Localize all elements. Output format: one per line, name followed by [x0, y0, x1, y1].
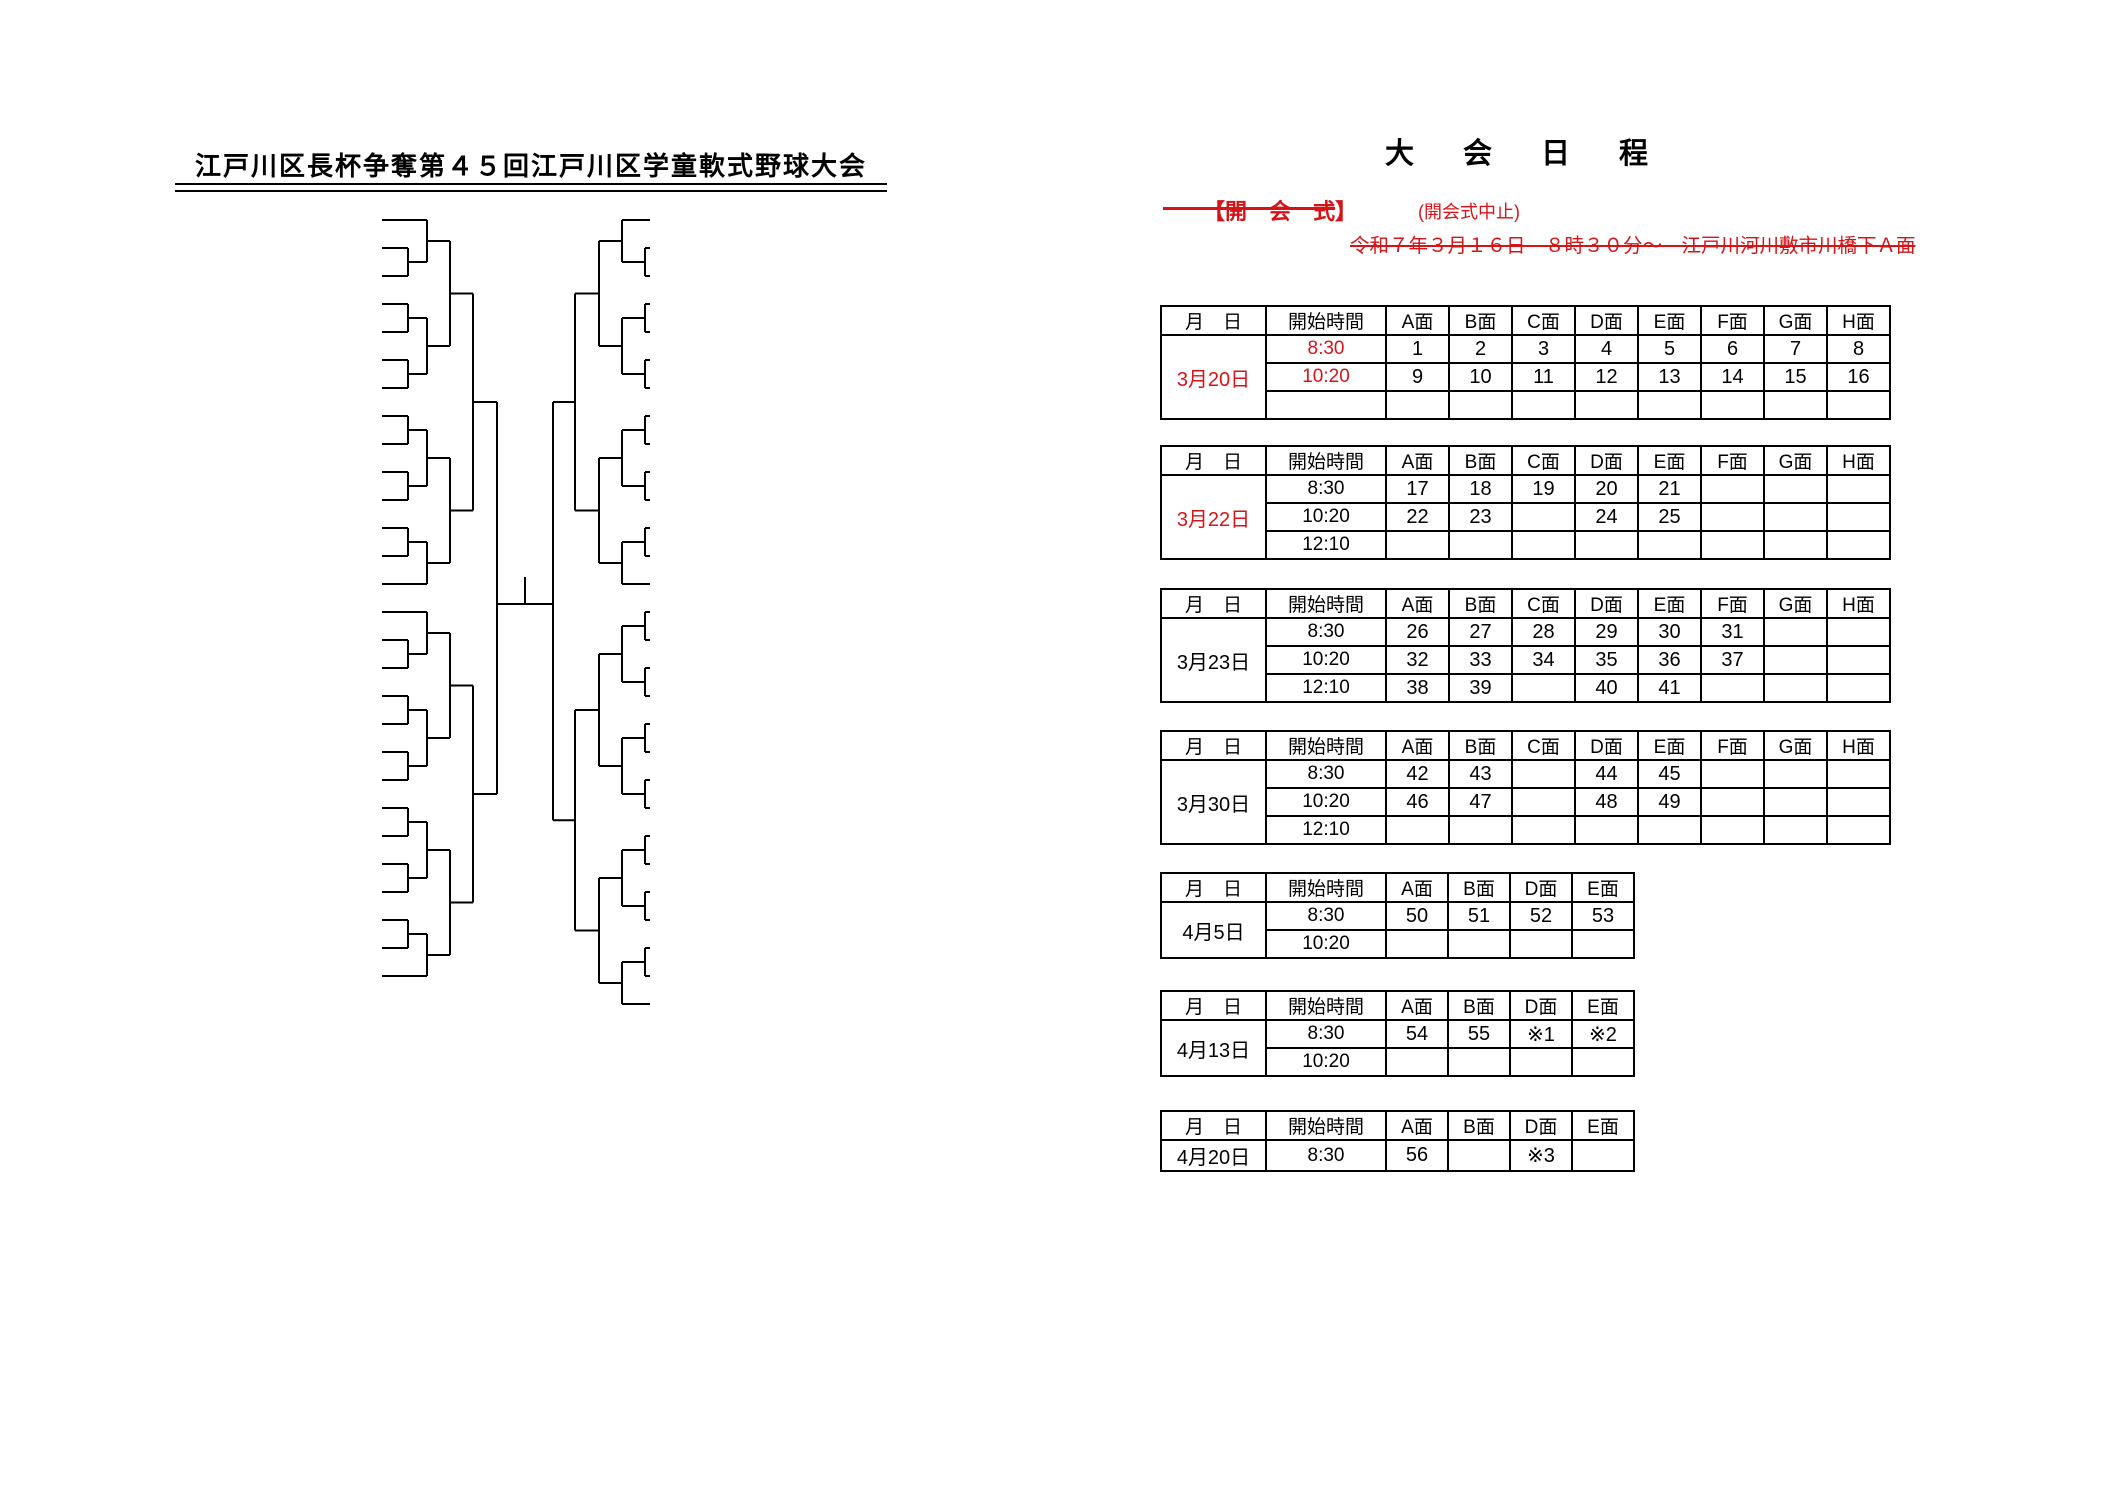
team-name — [188, 713, 356, 735]
team-name — [748, 685, 912, 707]
game-cell: 29 — [1575, 618, 1638, 646]
team-name — [748, 433, 912, 455]
team-name — [188, 489, 356, 511]
time-cell: 10:20 — [1266, 363, 1386, 391]
game-number — [605, 673, 641, 691]
face-column-header: B面 — [1449, 446, 1512, 475]
game-number — [387, 934, 423, 952]
game-cell — [1827, 788, 1890, 816]
game-cell — [1512, 503, 1575, 531]
title-underline — [175, 183, 887, 192]
team-name — [748, 797, 912, 819]
game-cell — [1827, 531, 1890, 559]
game-cell: 12 — [1575, 363, 1638, 391]
team-region — [686, 461, 740, 483]
game-cell — [1510, 930, 1572, 958]
team-name — [188, 573, 356, 595]
game-number — [582, 542, 618, 560]
team-name — [188, 265, 356, 287]
game-cell: 16 — [1827, 363, 1890, 391]
game-cell: 20 — [1575, 475, 1638, 503]
game-cell — [1386, 816, 1449, 844]
date-cell: 3月20日 — [1161, 335, 1266, 419]
seed-number — [654, 772, 680, 788]
team-name — [748, 881, 912, 903]
face-column-header: C面 — [1512, 306, 1575, 335]
game-cell — [1701, 531, 1764, 559]
game-number — [368, 477, 404, 495]
seed-number — [654, 856, 680, 872]
team-name — [748, 629, 912, 651]
team-name — [188, 881, 356, 903]
game-cell — [1638, 531, 1701, 559]
game-number — [535, 381, 571, 399]
seed-number — [654, 492, 680, 508]
face-column-header: A面 — [1386, 1111, 1448, 1140]
team-name — [748, 853, 912, 875]
game-cell: ※2 — [1572, 1020, 1634, 1048]
game-cell — [1575, 391, 1638, 419]
game-number — [605, 253, 641, 271]
game-cell — [1575, 816, 1638, 844]
game-number — [368, 757, 404, 775]
face-column-header: F面 — [1701, 731, 1764, 760]
game-cell: 11 — [1512, 363, 1575, 391]
game-number — [368, 253, 404, 271]
game-cell: 42 — [1386, 760, 1449, 788]
game-cell — [1448, 1048, 1510, 1076]
team-name — [748, 489, 912, 511]
game-cell: 23 — [1449, 503, 1512, 531]
seed-number — [654, 520, 680, 536]
team-name — [188, 349, 356, 371]
game-cell: 45 — [1638, 760, 1701, 788]
date-cell: 4月5日 — [1161, 902, 1266, 958]
team-name — [748, 741, 912, 763]
seed-number — [654, 604, 680, 620]
team-name — [748, 293, 912, 315]
game-cell: 6 — [1701, 335, 1764, 363]
face-column-header: F面 — [1701, 589, 1764, 618]
game-cell: 14 — [1701, 363, 1764, 391]
team-region — [128, 769, 182, 791]
face-column-header: H面 — [1827, 306, 1890, 335]
game-cell: 33 — [1449, 646, 1512, 674]
face-column-header: F面 — [1701, 306, 1764, 335]
game-cell — [1512, 788, 1575, 816]
game-number — [410, 490, 446, 508]
team-name — [748, 209, 912, 231]
team-region — [128, 489, 182, 511]
game-cell — [1764, 674, 1827, 702]
game-cell — [1701, 674, 1764, 702]
team-region — [128, 825, 182, 847]
team-region — [686, 657, 740, 679]
date-column-header: 月 日 — [1161, 589, 1266, 618]
seed-number — [348, 604, 376, 620]
team-region — [128, 405, 182, 427]
face-column-header: D面 — [1575, 589, 1638, 618]
time-column-header: 開始時間 — [1266, 991, 1386, 1020]
face-column-header: A面 — [1386, 589, 1449, 618]
time-column-header: 開始時間 — [1266, 446, 1386, 475]
seed-number — [654, 632, 680, 648]
team-region — [686, 209, 740, 231]
time-cell: 8:30 — [1266, 902, 1386, 930]
date-column-header: 月 日 — [1161, 306, 1266, 335]
game-cell: 15 — [1764, 363, 1827, 391]
game-cell — [1512, 531, 1575, 559]
game-cell — [1512, 760, 1575, 788]
game-number — [605, 365, 641, 383]
team-name — [188, 377, 356, 399]
team-name — [188, 657, 356, 679]
face-column-header: B面 — [1449, 731, 1512, 760]
team-region — [686, 629, 740, 651]
game-number — [582, 325, 618, 343]
team-region — [128, 629, 182, 651]
seed-number — [654, 324, 680, 340]
face-column-header: C面 — [1512, 446, 1575, 475]
game-cell — [1701, 475, 1764, 503]
face-column-header: D面 — [1510, 1111, 1572, 1140]
game-cell — [1510, 1048, 1572, 1076]
time-cell — [1266, 391, 1386, 419]
game-cell: 34 — [1512, 646, 1575, 674]
date-cell: 4月20日 — [1161, 1140, 1266, 1171]
game-cell — [1764, 816, 1827, 844]
team-region — [128, 349, 182, 371]
game-number — [387, 717, 423, 735]
game-number — [387, 325, 423, 343]
team-name — [188, 909, 356, 931]
date-column-header: 月 日 — [1161, 731, 1266, 760]
team-region — [128, 657, 182, 679]
game-cell — [1701, 816, 1764, 844]
game-number — [559, 273, 595, 291]
face-column-header: A面 — [1386, 991, 1448, 1020]
game-cell: 44 — [1575, 760, 1638, 788]
game-number-left-semifinal — [455, 594, 493, 612]
time-column-header: 開始時間 — [1266, 731, 1386, 760]
game-cell — [1638, 391, 1701, 419]
opening-ceremony-label: 【開 会 式】 — [1203, 194, 1357, 226]
game-cell: 8 — [1827, 335, 1890, 363]
team-name — [188, 629, 356, 651]
team-region — [686, 349, 740, 371]
seed-number — [348, 576, 376, 592]
schedule-title: 大 会 日 程 — [1385, 130, 1658, 172]
game-cell — [1827, 503, 1890, 531]
game-cell: 31 — [1701, 618, 1764, 646]
team-name — [188, 965, 356, 987]
game-cell: 30 — [1638, 618, 1701, 646]
seed-number — [654, 716, 680, 732]
game-number — [387, 612, 423, 630]
seed-number — [654, 940, 680, 956]
game-cell: 1 — [1386, 335, 1449, 363]
team-name — [188, 517, 356, 539]
team-region — [686, 405, 740, 427]
team-name — [748, 545, 912, 567]
game-cell — [1827, 760, 1890, 788]
date-column-header: 月 日 — [1161, 1111, 1266, 1140]
team-name — [748, 349, 912, 371]
date-cell: 3月22日 — [1161, 475, 1266, 559]
game-cell — [1827, 391, 1890, 419]
schedule-table: 月 日開始時間A面B面C面D面E面F面G面H面3月30日8:3042434445… — [1160, 730, 1891, 845]
game-cell — [1448, 930, 1510, 958]
face-column-header: B面 — [1448, 991, 1510, 1020]
game-number-final — [505, 610, 545, 628]
face-column-header: E面 — [1638, 589, 1701, 618]
team-region — [686, 321, 740, 343]
seed-number — [654, 380, 680, 396]
face-column-header: D面 — [1575, 731, 1638, 760]
schedule-table: 月 日開始時間A面B面D面E面4月5日8:305051525310:20 — [1160, 872, 1635, 959]
seed-number — [654, 996, 680, 1012]
game-cell — [1572, 1048, 1634, 1076]
face-column-header: B面 — [1449, 589, 1512, 618]
team-region — [128, 265, 182, 287]
game-cell — [1701, 788, 1764, 816]
date-cell: 3月30日 — [1161, 760, 1266, 844]
game-number — [410, 882, 446, 900]
seed-number — [654, 660, 680, 676]
game-number — [387, 437, 423, 455]
game-cell — [1512, 816, 1575, 844]
face-column-header: D面 — [1510, 991, 1572, 1020]
game-cell — [1449, 816, 1512, 844]
opening-cancel-note: (開会式中止) — [1418, 198, 1520, 224]
team-region — [686, 965, 740, 987]
seed-number — [654, 464, 680, 480]
game-cell: 26 — [1386, 618, 1449, 646]
team-region — [686, 769, 740, 791]
face-column-header: A面 — [1386, 873, 1448, 902]
game-cell: 38 — [1386, 674, 1449, 702]
game-cell — [1764, 475, 1827, 503]
game-number — [410, 665, 446, 683]
team-name — [748, 937, 912, 959]
game-number — [387, 829, 423, 847]
team-region — [686, 713, 740, 735]
seed-number — [348, 212, 376, 228]
face-column-header: E面 — [1572, 873, 1634, 902]
game-cell: 37 — [1701, 646, 1764, 674]
game-number — [582, 220, 618, 238]
game-number — [559, 689, 595, 707]
game-cell — [1386, 1048, 1448, 1076]
game-cell: 19 — [1512, 475, 1575, 503]
game-cell — [1638, 816, 1701, 844]
game-cell — [1575, 531, 1638, 559]
game-cell: 39 — [1449, 674, 1512, 702]
game-cell — [1764, 531, 1827, 559]
face-column-header: G面 — [1764, 731, 1827, 760]
game-cell: 5 — [1638, 335, 1701, 363]
face-column-header: D面 — [1510, 873, 1572, 902]
game-cell: 24 — [1575, 503, 1638, 531]
team-region — [686, 377, 740, 399]
team-region — [128, 433, 182, 455]
team-name — [748, 321, 912, 343]
game-number — [605, 897, 641, 915]
game-cell: 46 — [1386, 788, 1449, 816]
game-number — [535, 799, 571, 817]
team-region — [128, 741, 182, 763]
game-cell: ※1 — [1510, 1020, 1572, 1048]
game-cell — [1512, 674, 1575, 702]
team-name — [188, 545, 356, 567]
schedule-table: 月 日開始時間A面B面D面E面4月20日8:3056※3 — [1160, 1110, 1635, 1172]
team-region — [128, 461, 182, 483]
face-column-header: E面 — [1638, 446, 1701, 475]
tournament-title: 江戸川区長杯争奪第４５回江戸川区学童軟式野球大会 — [175, 146, 887, 183]
team-region — [686, 797, 740, 819]
time-cell: 8:30 — [1266, 618, 1386, 646]
team-name — [188, 601, 356, 623]
time-cell: 8:30 — [1266, 1020, 1386, 1048]
game-cell — [1386, 531, 1449, 559]
game-cell: 47 — [1449, 788, 1512, 816]
seed-number — [654, 912, 680, 928]
opening-details: 令和７年３月１６日 ８時３０分～ 江戸川河川敷市川橋下Ａ面 — [1350, 229, 1916, 258]
time-cell: 8:30 — [1266, 475, 1386, 503]
team-name — [188, 237, 356, 259]
game-cell: 28 — [1512, 618, 1575, 646]
team-name — [188, 321, 356, 343]
game-cell — [1449, 391, 1512, 419]
game-cell — [1701, 760, 1764, 788]
team-region — [128, 321, 182, 343]
team-region — [128, 965, 182, 987]
game-cell: ※3 — [1510, 1140, 1572, 1171]
face-column-header: D面 — [1575, 446, 1638, 475]
game-cell — [1572, 930, 1634, 958]
game-cell — [1449, 531, 1512, 559]
schedule-table: 月 日開始時間A面B面C面D面E面F面G面H面3月22日8:3017181920… — [1160, 445, 1891, 560]
game-cell — [1827, 475, 1890, 503]
game-cell: 9 — [1386, 363, 1449, 391]
team-region — [128, 937, 182, 959]
game-cell: 54 — [1386, 1020, 1448, 1048]
time-cell: 10:20 — [1266, 788, 1386, 816]
face-column-header: G面 — [1764, 306, 1827, 335]
face-column-header: E面 — [1572, 1111, 1634, 1140]
team-name — [748, 713, 912, 735]
game-cell — [1764, 503, 1827, 531]
team-region — [128, 713, 182, 735]
seed-number — [654, 212, 680, 228]
face-column-header: H面 — [1827, 446, 1890, 475]
team-name — [748, 601, 912, 623]
game-number — [433, 381, 469, 399]
face-column-header: F面 — [1701, 446, 1764, 475]
game-number — [582, 857, 618, 875]
game-cell: 55 — [1448, 1020, 1510, 1048]
seed-number — [654, 268, 680, 284]
game-number — [559, 910, 595, 928]
schedule-table: 月 日開始時間A面B面C面D面E面F面G面H面3月20日8:3012345678… — [1160, 305, 1891, 420]
game-cell: 27 — [1449, 618, 1512, 646]
game-cell: 18 — [1449, 475, 1512, 503]
seed-number — [654, 884, 680, 900]
team-region — [128, 685, 182, 707]
team-region — [686, 909, 740, 931]
team-name — [188, 797, 356, 819]
game-cell: 17 — [1386, 475, 1449, 503]
team-region — [686, 545, 740, 567]
game-number — [582, 962, 618, 980]
game-number — [387, 542, 423, 560]
game-number — [582, 633, 618, 651]
team-name — [748, 657, 912, 679]
face-column-header: A面 — [1386, 306, 1449, 335]
game-number — [433, 773, 469, 791]
face-column-header: G面 — [1764, 589, 1827, 618]
game-cell: 41 — [1638, 674, 1701, 702]
team-name — [188, 685, 356, 707]
game-number-right-semifinal — [557, 594, 595, 612]
seed-number — [654, 828, 680, 844]
seed-number — [654, 800, 680, 816]
seed-number — [654, 436, 680, 452]
team-region — [686, 853, 740, 875]
team-region — [686, 685, 740, 707]
game-cell — [1827, 674, 1890, 702]
face-column-header: B面 — [1448, 873, 1510, 902]
seed-number — [654, 744, 680, 760]
game-cell — [1764, 788, 1827, 816]
face-column-header: A面 — [1386, 446, 1449, 475]
team-name — [188, 937, 356, 959]
team-region — [128, 853, 182, 875]
game-cell: 53 — [1572, 902, 1634, 930]
seed-number — [654, 688, 680, 704]
time-column-header: 開始時間 — [1266, 1111, 1386, 1140]
date-column-header: 月 日 — [1161, 873, 1266, 902]
game-cell — [1448, 1140, 1510, 1171]
game-cell: 4 — [1575, 335, 1638, 363]
game-cell: 50 — [1386, 902, 1448, 930]
game-cell: 51 — [1448, 902, 1510, 930]
game-cell: 36 — [1638, 646, 1701, 674]
time-column-header: 開始時間 — [1266, 873, 1386, 902]
team-region — [686, 937, 740, 959]
game-cell — [1827, 816, 1890, 844]
opening-strike-line — [1163, 207, 1335, 210]
game-cell: 52 — [1510, 902, 1572, 930]
schedule-table: 月 日開始時間A面B面D面E面4月13日8:305455※1※210:20 — [1160, 990, 1635, 1077]
game-cell: 56 — [1386, 1140, 1448, 1171]
team-region — [686, 881, 740, 903]
time-cell: 12:10 — [1266, 531, 1386, 559]
time-cell: 8:30 — [1266, 335, 1386, 363]
seed-number — [654, 352, 680, 368]
game-cell — [1386, 930, 1448, 958]
team-name — [748, 825, 912, 847]
date-column-header: 月 日 — [1161, 446, 1266, 475]
game-number — [410, 273, 446, 291]
game-cell: 32 — [1386, 646, 1449, 674]
game-cell: 3 — [1512, 335, 1575, 363]
game-cell: 2 — [1449, 335, 1512, 363]
team-region — [128, 909, 182, 931]
time-cell: 8:30 — [1266, 1140, 1386, 1171]
seed-number — [654, 240, 680, 256]
time-cell: 12:10 — [1266, 816, 1386, 844]
